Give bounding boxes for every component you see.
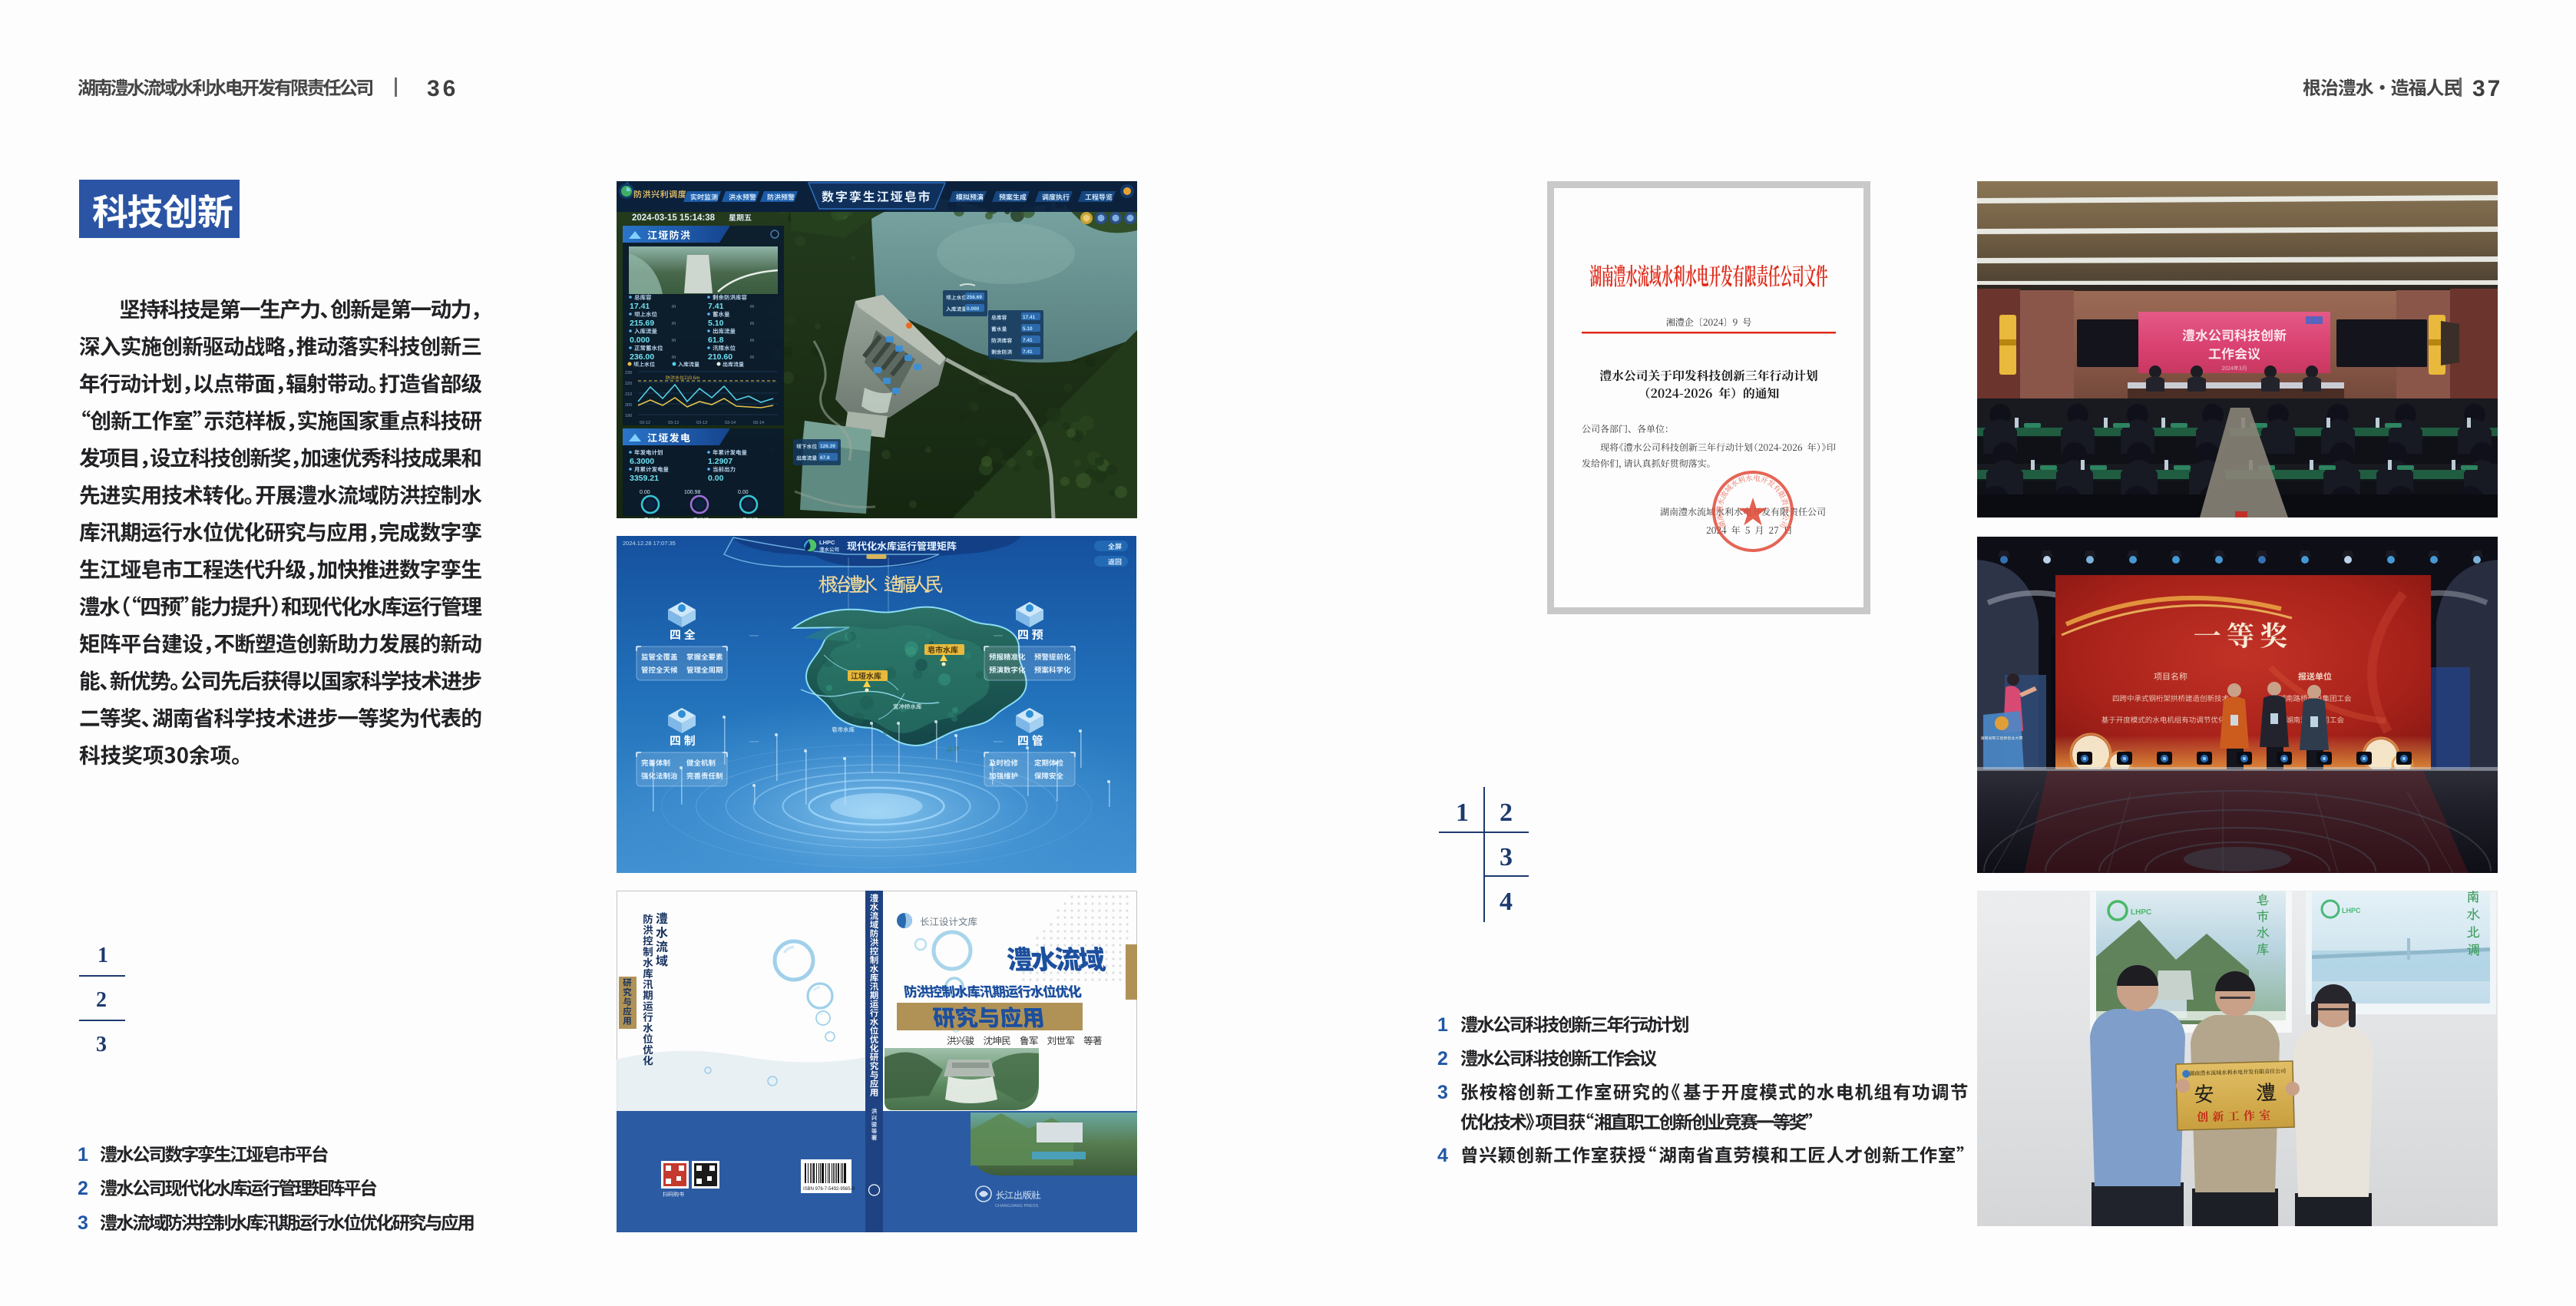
svg-text:17.41: 17.41 xyxy=(1023,315,1036,320)
svg-text:4: 4 xyxy=(1500,888,1513,916)
svg-text:m: m xyxy=(672,305,676,309)
svg-text:190: 190 xyxy=(625,414,632,418)
svg-text:7.41: 7.41 xyxy=(1023,338,1033,343)
svg-text:220: 220 xyxy=(625,382,632,386)
svg-text:3: 3 xyxy=(96,1033,107,1056)
svg-text:03-12: 03-12 xyxy=(640,421,650,425)
svg-text:3: 3 xyxy=(1500,843,1513,871)
svg-text:03-13: 03-13 xyxy=(668,421,679,425)
svg-text:5.10: 5.10 xyxy=(1023,326,1033,332)
svg-text:100.98: 100.98 xyxy=(684,490,701,495)
svg-text:m: m xyxy=(672,322,676,326)
svg-text:3: 3 xyxy=(78,1212,88,1234)
svg-text:m: m xyxy=(750,305,754,309)
svg-text:61.8: 61.8 xyxy=(708,336,724,345)
svg-text:0.00: 0.00 xyxy=(640,490,650,495)
svg-text:1: 1 xyxy=(98,944,108,967)
svg-text:0.00: 0.00 xyxy=(738,490,749,495)
svg-text:1.2907: 1.2907 xyxy=(708,457,732,466)
svg-text:m: m xyxy=(750,322,754,326)
svg-text:67.8: 67.8 xyxy=(820,455,830,461)
svg-text:LHPC: LHPC xyxy=(2131,908,2151,917)
svg-text:m: m xyxy=(672,355,676,360)
svg-text:200: 200 xyxy=(625,403,632,408)
svg-text:1: 1 xyxy=(78,1144,88,1165)
svg-text:230: 230 xyxy=(625,371,632,375)
svg-text:37: 37 xyxy=(2472,76,2502,101)
svg-text:2024.12.28 17:07:35: 2024.12.28 17:07:35 xyxy=(623,540,676,547)
svg-text:03-13: 03-13 xyxy=(696,421,707,425)
svg-text:ISBN 978-7-5492-9565-9: ISBN 978-7-5492-9565-9 xyxy=(803,1187,855,1192)
svg-text:03-14: 03-14 xyxy=(753,421,764,425)
svg-text:236.00: 236.00 xyxy=(630,352,654,362)
svg-text:256.69: 256.69 xyxy=(967,295,982,300)
svg-text:m: m xyxy=(672,339,676,343)
svg-text:1: 1 xyxy=(1437,1014,1448,1036)
svg-text:m: m xyxy=(750,339,754,343)
svg-text:LHPC: LHPC xyxy=(819,539,835,546)
svg-text:3: 3 xyxy=(1437,1082,1448,1103)
svg-text:126.39: 126.39 xyxy=(820,444,835,449)
svg-text:6.3000: 6.3000 xyxy=(630,457,654,466)
svg-text:210.60: 210.60 xyxy=(708,352,732,362)
svg-text:0.000: 0.000 xyxy=(967,306,980,312)
svg-text:m: m xyxy=(750,355,754,360)
svg-text:0.000: 0.000 xyxy=(630,336,650,345)
svg-text:03-14: 03-14 xyxy=(725,421,736,425)
svg-text:215.69: 215.69 xyxy=(630,319,654,328)
svg-text:36: 36 xyxy=(427,76,458,101)
svg-text:2: 2 xyxy=(1437,1048,1448,1070)
svg-text:2024-03-15 15:14:38: 2024-03-15 15:14:38 xyxy=(632,213,716,223)
svg-text:2: 2 xyxy=(96,988,107,1012)
svg-text:4: 4 xyxy=(1437,1145,1448,1166)
svg-text:LHPC: LHPC xyxy=(2342,907,2361,914)
svg-text:1: 1 xyxy=(1456,798,1469,827)
svg-text:17.41: 17.41 xyxy=(630,302,650,311)
svg-text:7.41: 7.41 xyxy=(1023,349,1033,355)
svg-text:3359.21: 3359.21 xyxy=(630,474,659,483)
svg-text:2: 2 xyxy=(1500,798,1513,827)
svg-text:210: 210 xyxy=(625,392,632,397)
svg-text:0.00: 0.00 xyxy=(708,474,724,483)
svg-text:CHANGJIANG PRESS: CHANGJIANG PRESS xyxy=(995,1204,1039,1208)
svg-text:5.10: 5.10 xyxy=(708,319,724,328)
svg-text:7.41: 7.41 xyxy=(708,302,724,311)
svg-text:2: 2 xyxy=(78,1178,88,1199)
